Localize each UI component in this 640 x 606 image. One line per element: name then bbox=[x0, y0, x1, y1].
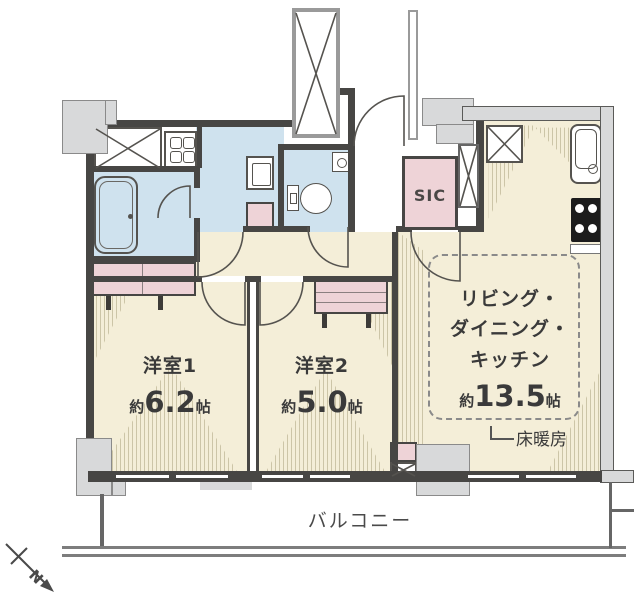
floor-heating-label: 床暖房 bbox=[516, 428, 596, 454]
sic-label: SIC bbox=[402, 184, 458, 208]
washroom-door-arc bbox=[198, 232, 243, 277]
room2-name: 洋室2 bbox=[252, 352, 392, 381]
duct-shaft-cross bbox=[460, 146, 477, 206]
toilet-door-arc bbox=[308, 227, 348, 267]
ldk-name-line1: リビング・ bbox=[440, 284, 580, 314]
ldk-size: 約13.5帖 bbox=[440, 375, 580, 419]
ldk-label: リビング・ ダイニング・ キッチン 約13.5帖 bbox=[440, 284, 580, 419]
bathroom-door-arc bbox=[158, 186, 190, 218]
ldk-name-line3: キッチン bbox=[440, 345, 580, 375]
ldk-door-arc bbox=[411, 232, 460, 281]
refrigerator-cross bbox=[488, 127, 521, 161]
ldk-name-line2: ダイニング・ bbox=[440, 314, 580, 344]
pipe-shaft-cross bbox=[296, 13, 336, 134]
room1-name: 洋室1 bbox=[100, 352, 240, 381]
duct-box-cross bbox=[392, 464, 415, 476]
room1-size: 約6.2帖 bbox=[100, 381, 240, 425]
room1-door-arc bbox=[202, 282, 245, 325]
balcony-label: バルコニー bbox=[280, 507, 440, 536]
washer-pan-cross bbox=[96, 129, 160, 168]
room2-door-arc bbox=[260, 282, 303, 325]
room2-label: 洋室2 約5.0帖 bbox=[252, 352, 392, 424]
room2-size: 約5.0帖 bbox=[252, 381, 392, 425]
room1-label: 洋室1 約6.2帖 bbox=[100, 352, 240, 424]
entrance-door-arc bbox=[354, 96, 404, 146]
floor-plan-canvas: N 洋室1 約6.2帖 洋室2 約5.0帖 リビング・ ダイニング・ キッチン … bbox=[0, 0, 640, 606]
compass-north-arrow: N bbox=[6, 544, 54, 592]
